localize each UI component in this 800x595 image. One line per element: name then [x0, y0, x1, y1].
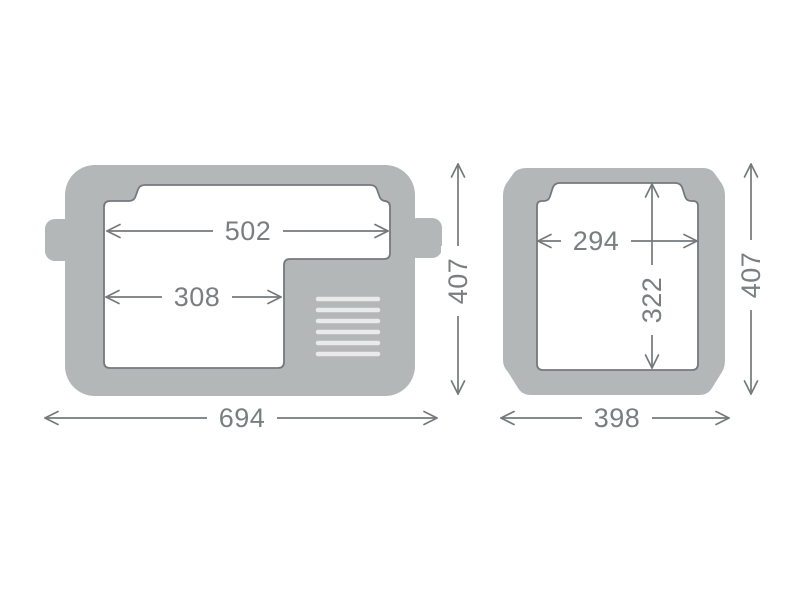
dimension-label: 398 — [594, 403, 641, 433]
dimension-label: 694 — [219, 403, 266, 433]
dimension-label: 294 — [573, 226, 620, 256]
side-view: 502 308 694 — [45, 164, 475, 435]
dimension-label: 502 — [225, 216, 272, 246]
dimension-outer-width-front: 398 — [501, 401, 729, 435]
front-view: 294 322 398 — [501, 164, 768, 435]
dimension-diagram-page: 502 308 694 — [0, 0, 800, 595]
dimension-diagram: 502 308 694 — [0, 0, 800, 595]
dimension-outer-height-side: 407 — [441, 164, 475, 394]
dimension-label: 322 — [637, 277, 667, 324]
dimension-label: 308 — [174, 282, 221, 312]
dimension-label: 407 — [443, 258, 473, 305]
dimension-label: 407 — [736, 252, 766, 299]
lid-seal-cutout-front — [537, 183, 698, 370]
dimension-outer-height-front: 407 — [734, 164, 768, 394]
dimension-outer-width-side: 694 — [45, 401, 437, 435]
